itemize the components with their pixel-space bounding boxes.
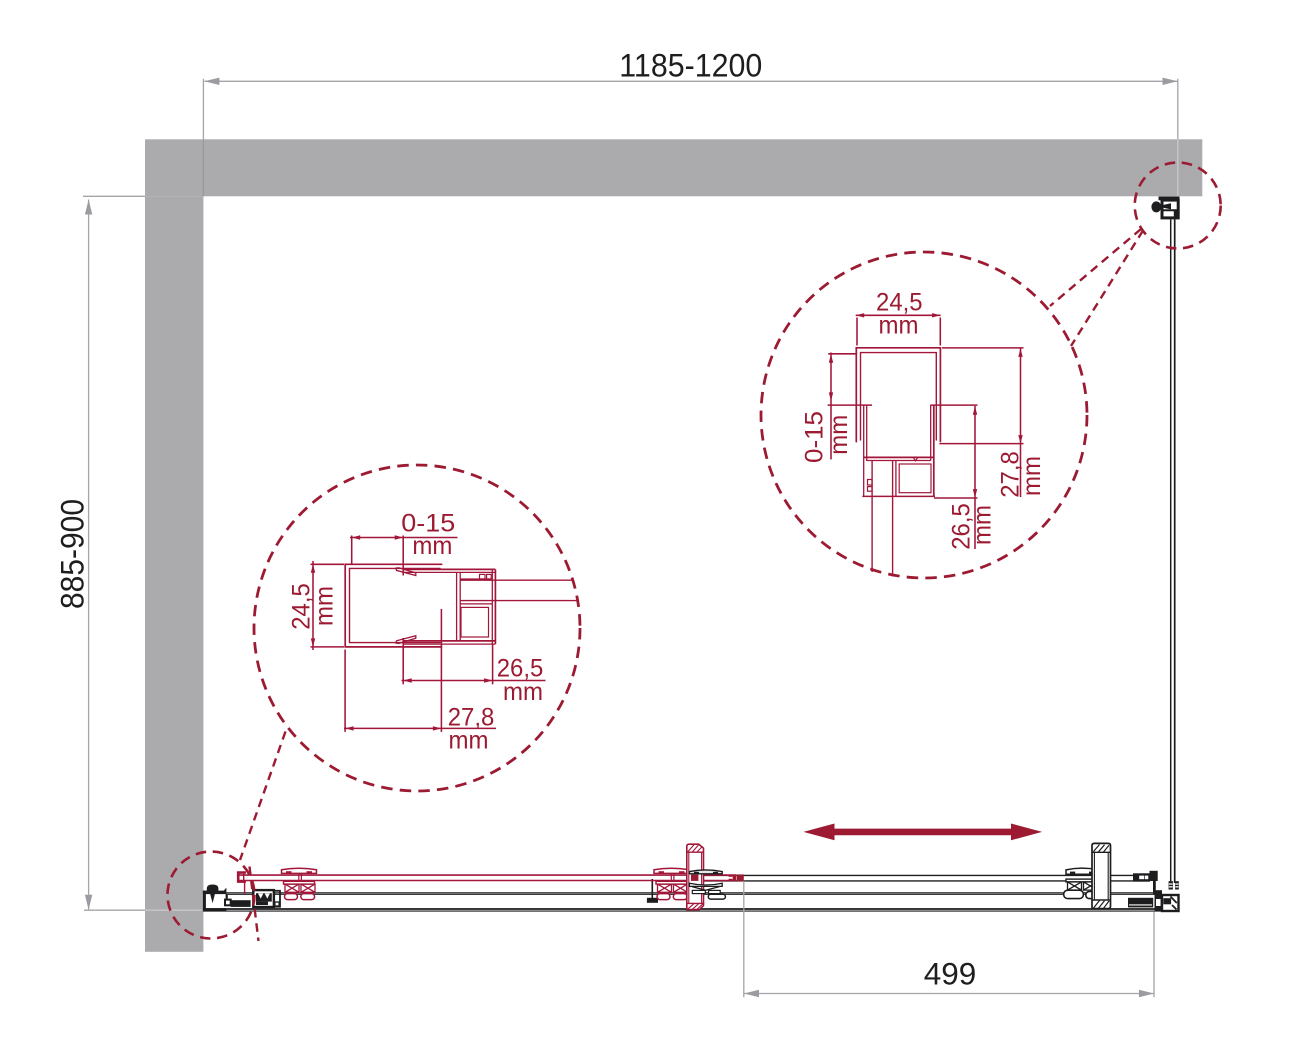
svg-text:mm: mm	[1018, 456, 1046, 496]
svg-text:mm: mm	[412, 532, 452, 560]
svg-text:mm: mm	[969, 505, 997, 545]
svg-text:mm: mm	[311, 586, 339, 626]
svg-text:mm: mm	[825, 415, 853, 455]
svg-text:mm: mm	[503, 678, 543, 706]
svg-text:885-900: 885-900	[55, 499, 91, 609]
svg-text:1185-1200: 1185-1200	[619, 47, 762, 83]
svg-text:499: 499	[924, 956, 977, 992]
svg-text:mm: mm	[449, 727, 489, 755]
svg-text:mm: mm	[879, 312, 919, 340]
